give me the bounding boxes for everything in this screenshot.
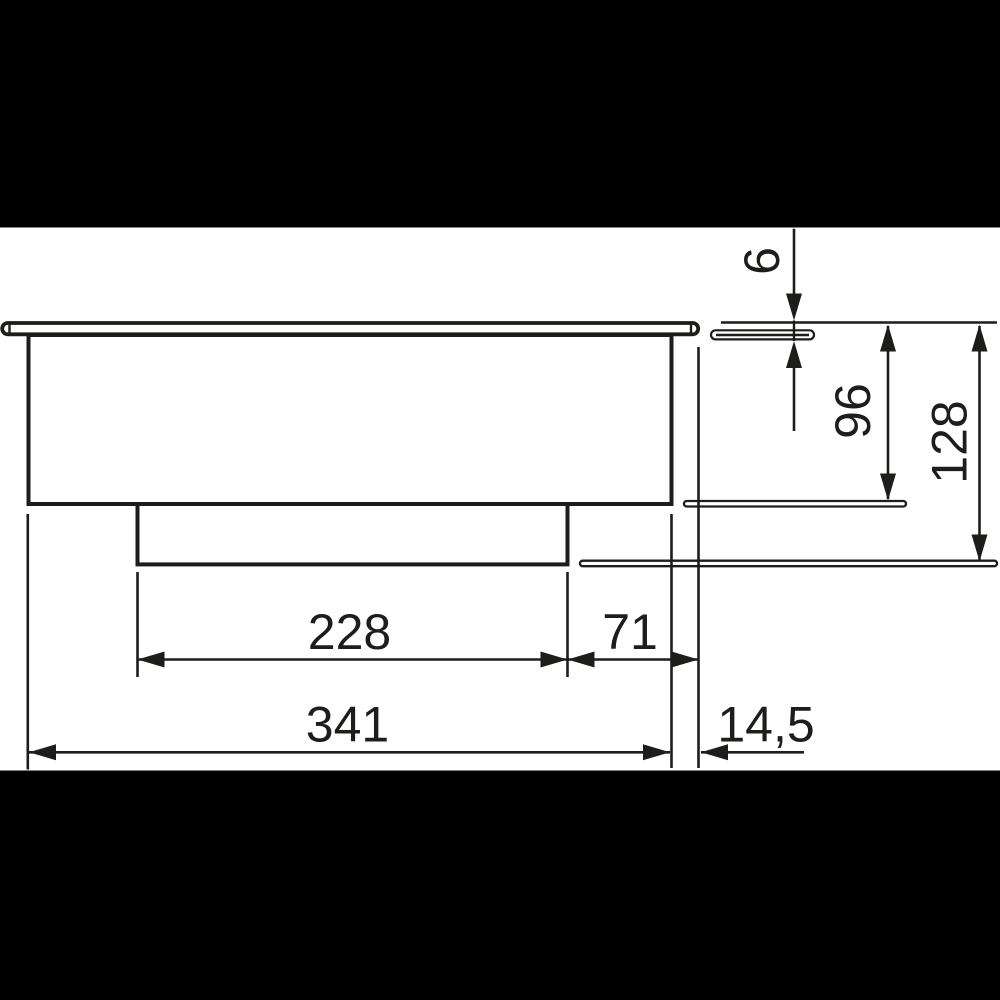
svg-text:341: 341	[306, 697, 389, 753]
svg-text:96: 96	[825, 383, 881, 439]
svg-text:128: 128	[922, 400, 978, 483]
svg-text:71: 71	[602, 604, 658, 660]
svg-text:228: 228	[308, 604, 391, 660]
svg-text:6: 6	[734, 247, 790, 275]
svg-text:14,5: 14,5	[717, 697, 814, 753]
